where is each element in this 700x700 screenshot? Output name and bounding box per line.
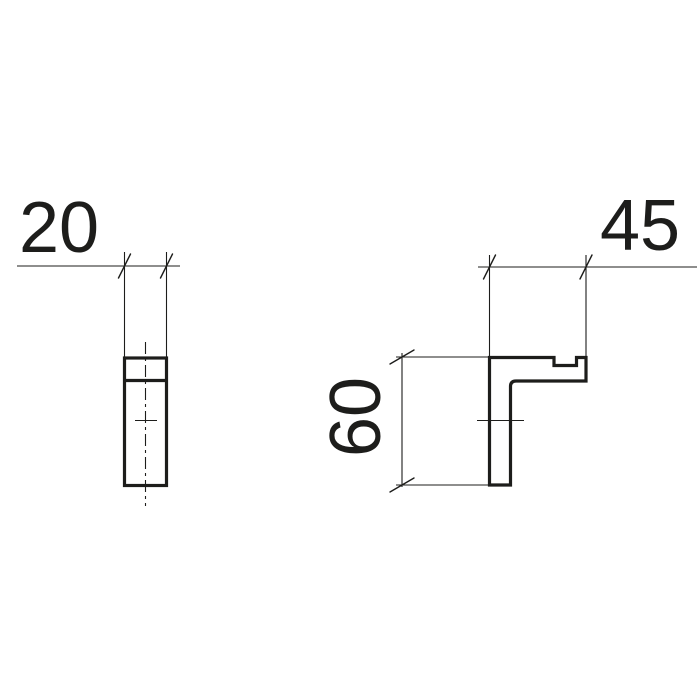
- dimension-depth: 45: [478, 186, 697, 357]
- dim-height-label: 60: [316, 377, 396, 457]
- drawing-canvas: 20 45 60: [0, 0, 700, 700]
- dimension-width: 20: [17, 188, 180, 357]
- dim-depth-label: 45: [600, 186, 680, 266]
- front-view: [125, 342, 167, 506]
- dim-width-label: 20: [19, 188, 99, 268]
- side-view-outline: [490, 358, 587, 486]
- side-view: [477, 358, 586, 486]
- dimension-height: 60: [316, 350, 500, 492]
- technical-drawing: 20 45 60: [0, 0, 700, 700]
